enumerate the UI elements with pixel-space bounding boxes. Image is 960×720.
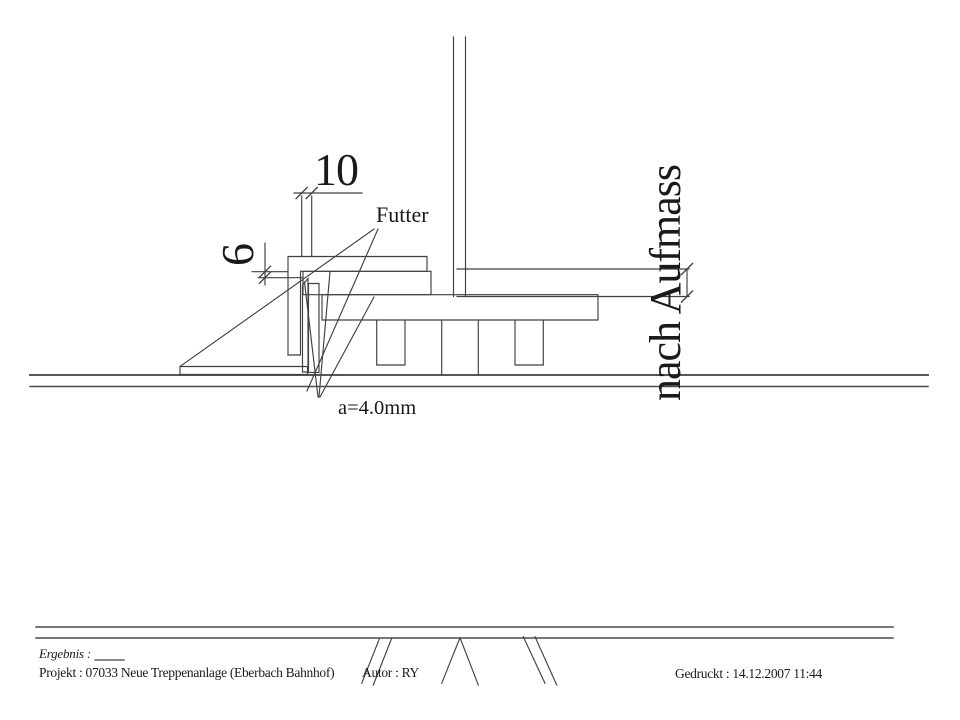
weld-leader-lines: [305, 272, 375, 398]
support-rib: [442, 320, 479, 375]
support-stub-right: [515, 320, 543, 365]
fold-mark-peak: [442, 638, 479, 685]
ergebnis-label: Ergebnis :: [38, 646, 91, 661]
dim-6-label: 6: [212, 244, 263, 266]
dim-10-lines: [294, 187, 362, 256]
projekt-label: Projekt : 07033 Neue Treppenanlage (Eber…: [39, 665, 334, 680]
cad-print-page: 10 6 Futter a=4.0mm nach Aufmass Ergebni…: [0, 0, 960, 720]
flange-plate: [303, 271, 431, 294]
autor-label: Autor : RY: [362, 665, 420, 680]
cad-drawing-canvas: 10 6 Futter a=4.0mm nach Aufmass Ergebni…: [0, 0, 960, 720]
ground-lines: [30, 375, 928, 387]
nach-aufmass-label: nach Aufmass: [641, 165, 690, 401]
fold-mark-backslashes: [523, 637, 556, 685]
post-lines: [454, 37, 466, 297]
gedruckt-label: Gedruckt : 14.12.2007 11:44: [675, 666, 823, 681]
title-block-lines: [36, 627, 893, 638]
dim-10-label: 10: [314, 144, 358, 195]
support-stub-left: [377, 320, 405, 365]
weld-spec-label: a=4.0mm: [338, 397, 416, 419]
futter-label: Futter: [376, 202, 429, 227]
base-plate: [180, 367, 308, 375]
